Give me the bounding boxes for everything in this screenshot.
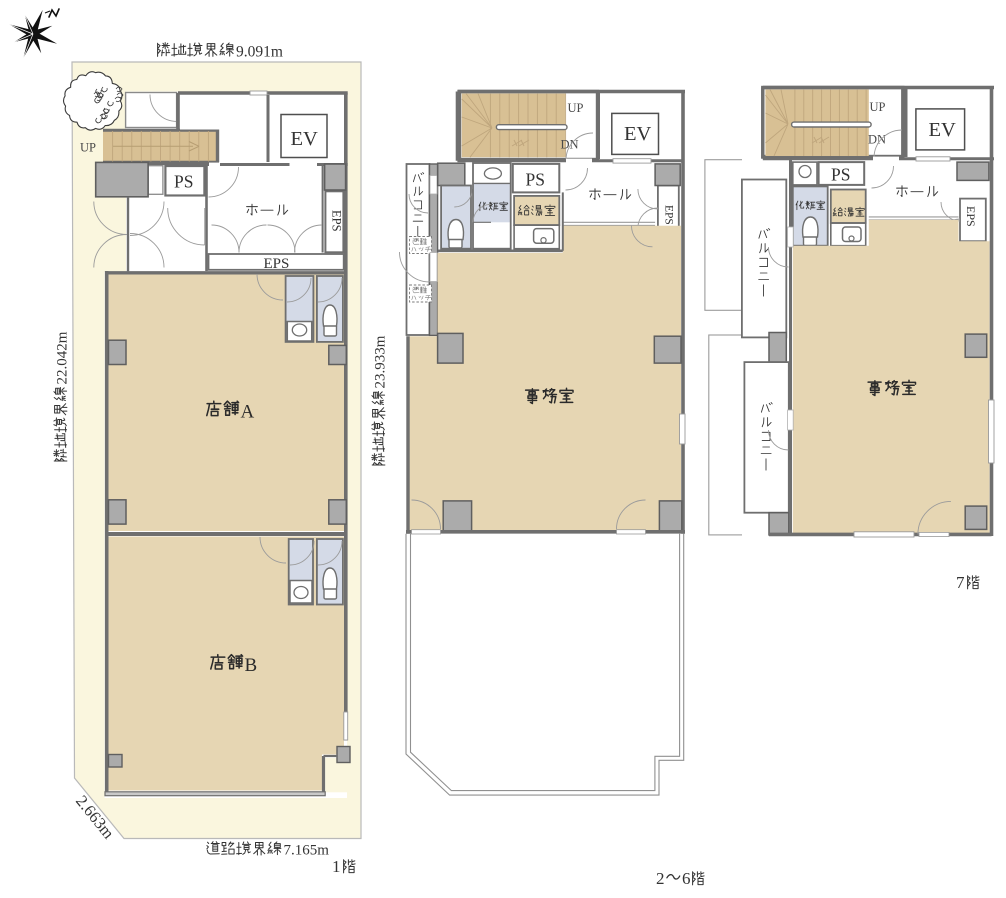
svg-text:A: A xyxy=(241,402,255,423)
svg-text:EV: EV xyxy=(929,119,957,141)
svg-text:EV: EV xyxy=(291,128,319,150)
svg-text:EV: EV xyxy=(624,123,652,145)
svg-text:EPS: EPS xyxy=(964,206,978,227)
svg-text:PS: PS xyxy=(831,165,850,185)
svg-text:B: B xyxy=(245,655,258,676)
svg-text:UP: UP xyxy=(568,101,584,115)
svg-text:6: 6 xyxy=(682,869,691,888)
svg-text:7.165m: 7.165m xyxy=(284,843,330,859)
svg-text:EPS: EPS xyxy=(663,205,675,225)
svg-text:PS: PS xyxy=(526,170,545,190)
svg-text:9.091m: 9.091m xyxy=(236,44,283,61)
svg-text:UP: UP xyxy=(870,100,886,114)
svg-text:UP: UP xyxy=(80,141,96,155)
svg-text:EPS: EPS xyxy=(330,210,344,232)
svg-text:EPS: EPS xyxy=(264,256,290,272)
svg-text:2: 2 xyxy=(656,869,665,888)
svg-text:22.042m: 22.042m xyxy=(55,331,71,384)
svg-text:1: 1 xyxy=(332,857,341,876)
svg-text:PS: PS xyxy=(174,172,193,192)
svg-text:7: 7 xyxy=(956,573,965,592)
svg-text:23.933m: 23.933m xyxy=(373,335,389,388)
